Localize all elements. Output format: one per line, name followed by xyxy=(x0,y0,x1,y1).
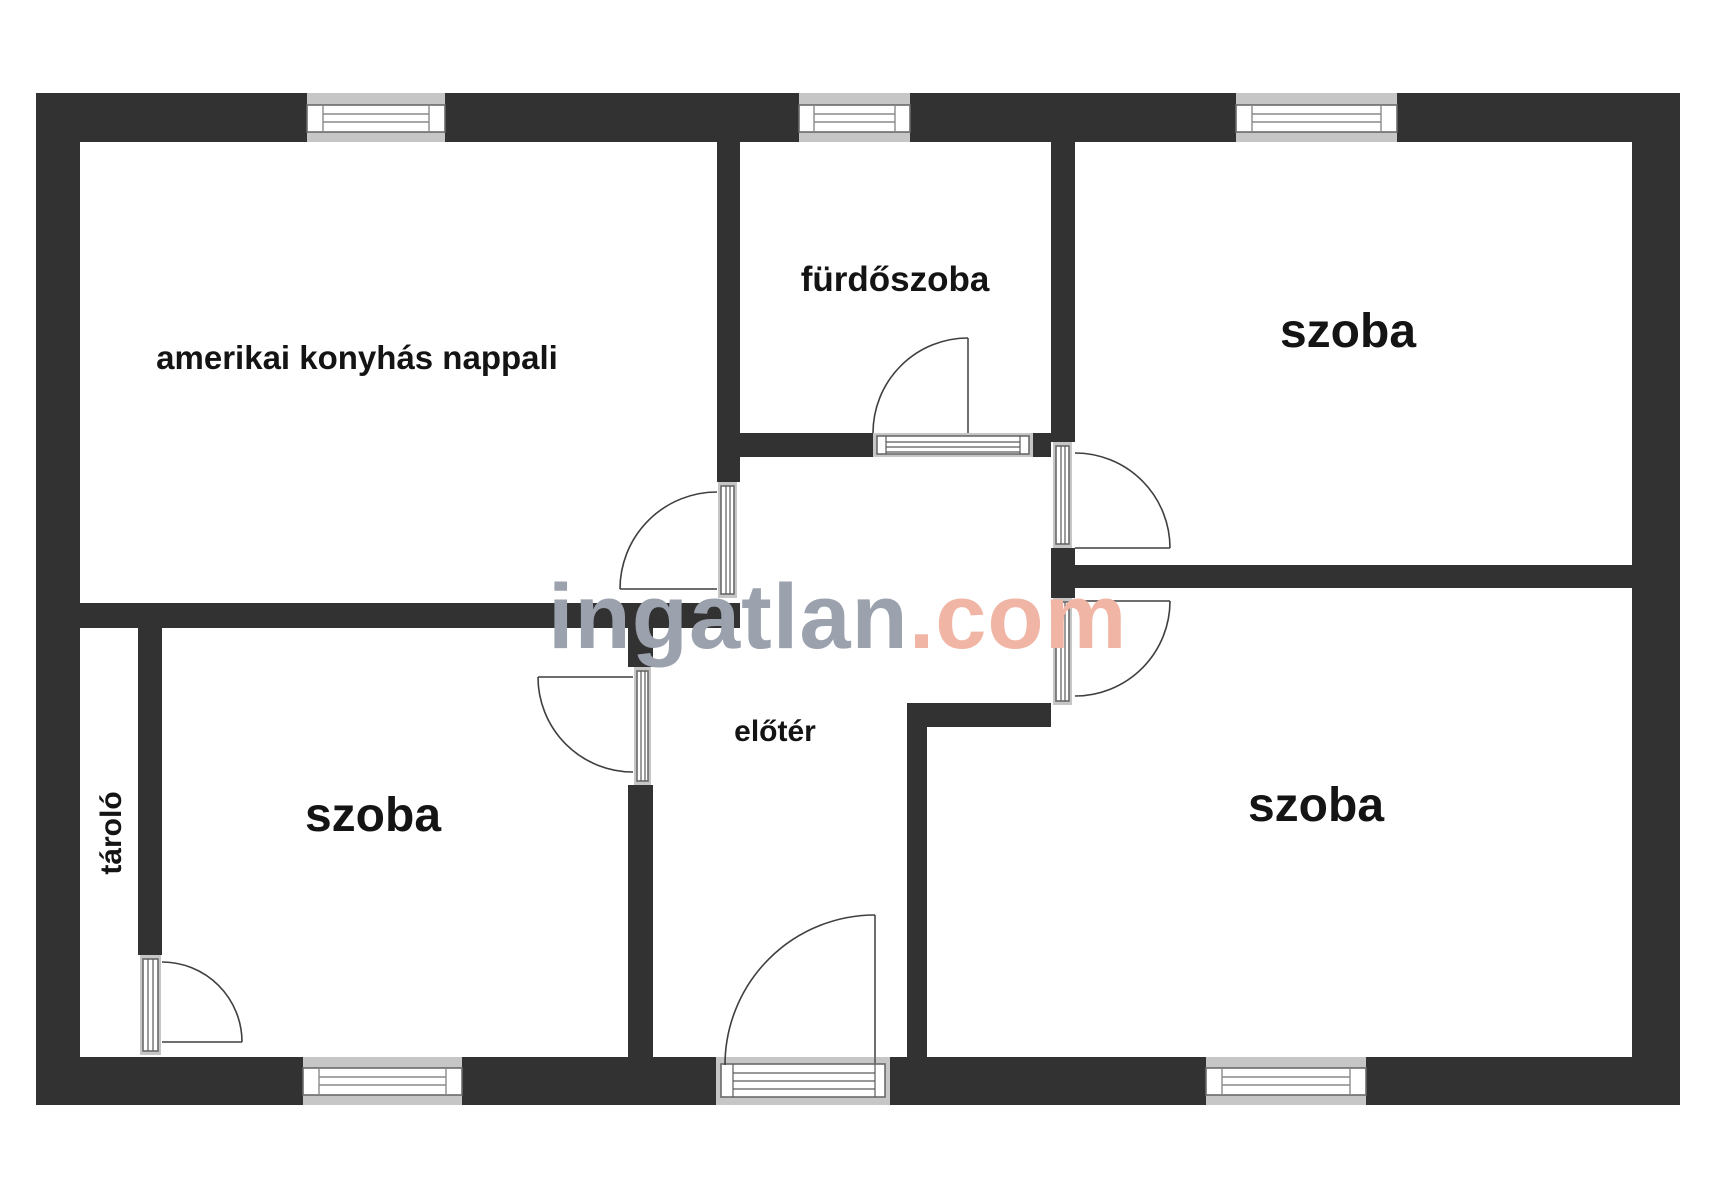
watermark-brand: ingatlan xyxy=(548,566,909,668)
window-bathroom xyxy=(799,93,910,142)
wall-hall-room-left-lower xyxy=(628,785,653,1057)
wall-left xyxy=(36,93,80,1105)
door-room-top-right-swing xyxy=(1075,453,1170,548)
wall-living-bathroom xyxy=(717,142,740,482)
door-storage-swing xyxy=(162,962,242,1042)
window-bottom-right xyxy=(1206,1057,1366,1105)
watermark-logo: ingatlan.com xyxy=(548,566,1127,668)
wall-notch-horizontal xyxy=(907,703,1051,727)
room-label-room-top-right: szoba xyxy=(1280,305,1416,358)
window-bottom-left xyxy=(303,1057,462,1105)
wall-bottom-3 xyxy=(890,1057,1206,1105)
room-label-living: amerikai konyhás nappali xyxy=(156,339,558,376)
door-entry-threshold xyxy=(716,1057,890,1105)
wall-bathroom-room xyxy=(1051,142,1075,442)
door-room-bottom-left-frame xyxy=(634,667,651,785)
room-label-bathroom: fürdőszoba xyxy=(801,260,990,299)
window-top-right xyxy=(1236,93,1397,142)
wall-notch-vertical xyxy=(907,703,927,1057)
wall-bottom-2 xyxy=(462,1057,716,1105)
door-storage-frame xyxy=(140,955,161,1055)
door-room-top-right-frame xyxy=(1053,442,1072,548)
wall-bathroom-bottom-left xyxy=(740,433,873,457)
wall-between-right-rooms xyxy=(1051,565,1632,588)
room-label-hall: előtér xyxy=(734,715,816,748)
wall-right xyxy=(1632,93,1680,1105)
door-room-bottom-left-swing xyxy=(538,677,633,772)
door-bathroom-swing xyxy=(873,338,968,433)
wall-storage-right xyxy=(138,628,162,955)
wall-bathroom-bottom-right xyxy=(1033,433,1051,457)
floorplan-svg: ingatlan.com amerikai konyhás nappali fü… xyxy=(0,0,1720,1200)
door-entry-swing xyxy=(725,915,875,1065)
watermark-suffix: .com xyxy=(909,566,1128,668)
room-label-room-bottom-right: szoba xyxy=(1248,779,1384,832)
wall-top-2 xyxy=(445,93,799,142)
door-bathroom-threshold xyxy=(873,433,1033,457)
floorplan-canvas: ingatlan.com amerikai konyhás nappali fü… xyxy=(0,0,1720,1200)
room-label-room-bottom-left: szoba xyxy=(305,789,441,842)
room-label-storage: tároló xyxy=(95,791,128,874)
wall-top-3 xyxy=(910,93,1236,142)
window-top-left xyxy=(307,93,445,142)
